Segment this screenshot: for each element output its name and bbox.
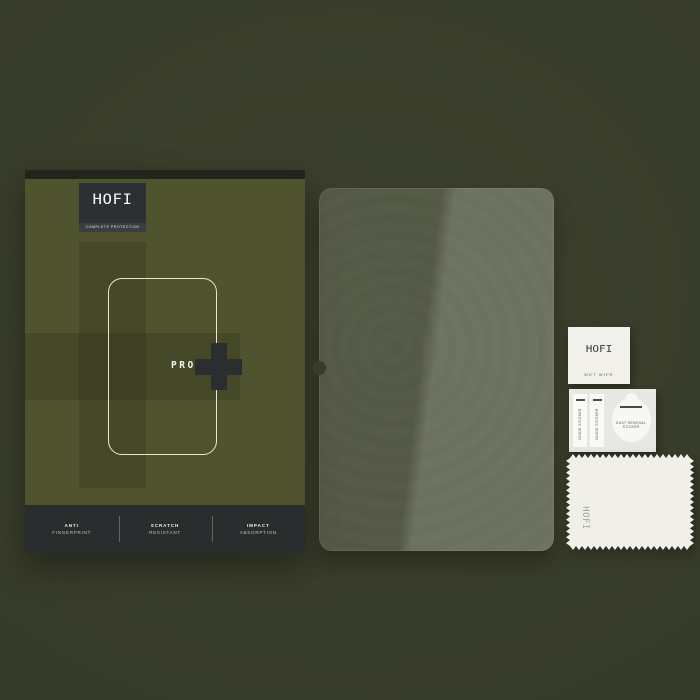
brand-logo-panel: HOFI COMPLETE PROTECTION (79, 183, 146, 232)
guide-sticker: GUIDE STICKER (573, 394, 587, 447)
box-top-edge (25, 170, 305, 179)
feature-divider (119, 516, 120, 542)
product-box: HOFI COMPLETE PROTECTION PRO ANTI FINGER… (25, 170, 305, 553)
sticker-tab-mark (620, 406, 642, 408)
feature-divider (212, 516, 213, 542)
box-front: HOFI COMPLETE PROTECTION PRO ANTI FINGER… (25, 179, 305, 553)
feature-bar: ANTI FINGERPRINT SCRATCH RESISTANT IMPAC… (25, 505, 305, 553)
brand-tagline: COMPLETE PROTECTION (79, 223, 146, 232)
guide-sticker-label: GUIDE STICKER (578, 404, 582, 444)
sticker-sheet: GUIDE STICKER GUIDE STICKER DUST REMOVAL… (569, 389, 656, 452)
feature-title: SCRATCH (151, 523, 179, 528)
feature-title: ANTI (65, 523, 79, 528)
guide-sticker: GUIDE STICKER (590, 394, 604, 447)
model-label: PRO (171, 360, 196, 371)
sticker-tab-mark (576, 399, 585, 401)
microfiber-cloth: HOFI (564, 452, 696, 552)
cloth-brand: HOFI (580, 503, 590, 533)
feature-anti-fingerprint: ANTI FINGERPRINT (25, 505, 118, 553)
glass-reflection-rings (319, 188, 554, 551)
plus-icon (211, 343, 227, 390)
camera-notch-cutout (312, 361, 326, 375)
brand-logo: HOFI (75, 192, 150, 208)
feature-subtitle: RESISTANT (149, 530, 181, 535)
dust-removal-sticker-tab (625, 393, 638, 406)
wet-wipe-sachet: HOFI WET WIPE (568, 327, 630, 384)
tempered-glass-protector (319, 188, 554, 551)
feature-subtitle: FINGERPRINT (52, 530, 91, 535)
feature-scratch-resistant: SCRATCH RESISTANT (118, 505, 211, 553)
cloth-zigzag-shape (564, 452, 696, 552)
wet-wipe-brand: HOFI (565, 344, 633, 355)
dust-removal-sticker-label: DUST REMOVAL STICKER (614, 421, 648, 430)
guide-sticker-label: GUIDE STICKER (595, 404, 599, 444)
feature-impact-absorption: IMPACT ABSORPTION (212, 505, 305, 553)
feature-title: IMPACT (247, 523, 270, 528)
feature-subtitle: ABSORPTION (240, 530, 277, 535)
product-photo: HOFI COMPLETE PROTECTION PRO ANTI FINGER… (0, 0, 700, 700)
sticker-tab-mark (593, 399, 602, 401)
wet-wipe-label: WET WIPE (568, 372, 630, 377)
